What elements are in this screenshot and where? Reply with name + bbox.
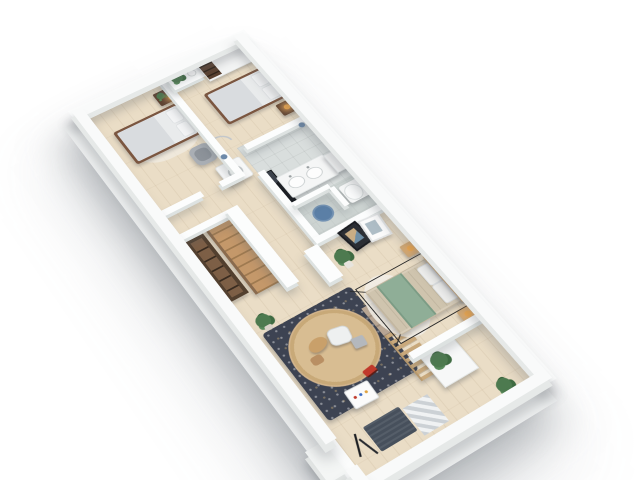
toy-box-mark-red: [353, 395, 357, 399]
toy-box-mark-blue: [359, 393, 363, 397]
art-frame-dark-image: [345, 228, 365, 244]
art-frame-light-image: [365, 219, 383, 235]
apartment-plan: [72, 32, 552, 480]
floorplan-scene: [0, 0, 640, 480]
toy-box-mark-amber: [364, 390, 368, 394]
